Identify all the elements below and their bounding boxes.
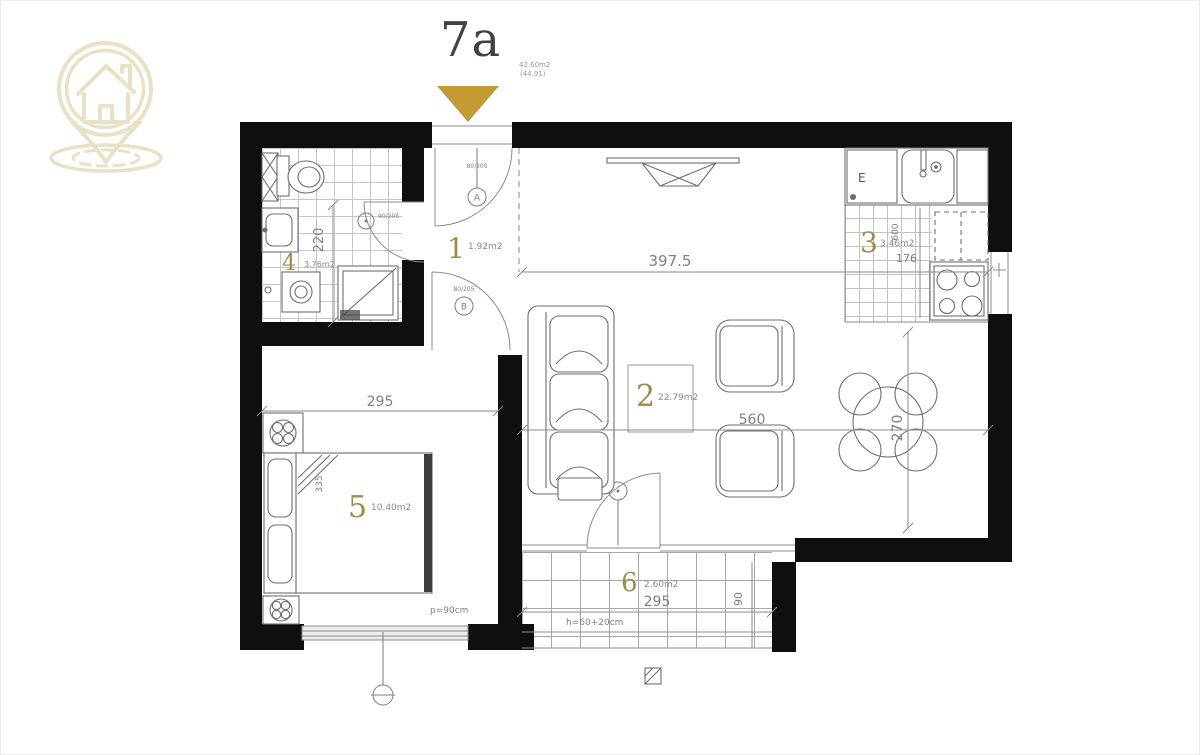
unit-title: 7a — [440, 12, 501, 68]
armchair-1 — [716, 320, 794, 392]
door-a-size: 80/205 — [466, 163, 487, 170]
total-gross-area: (44.91) — [520, 70, 546, 78]
sofa — [528, 306, 614, 500]
kitchen-e-label: E — [858, 171, 866, 185]
room-3-number: 3 — [860, 226, 878, 259]
floor-plan-page: 1 1.92m2 2 22.79m2 3 3.46m2 4 3.76m2 5 1… — [0, 0, 1200, 755]
bathroom-door-arc — [358, 202, 424, 262]
room-5-number: 5 — [348, 490, 367, 525]
tv — [607, 158, 739, 186]
nightstand-2 — [263, 596, 299, 624]
dim-terrace-depth: 90 — [732, 592, 745, 606]
room-1-area: 1.92m2 — [468, 242, 503, 252]
nightstand-1 — [263, 413, 303, 453]
room-4-area: 3.76m2 — [304, 260, 335, 269]
house-pin-logo — [40, 32, 180, 182]
terrace-railing — [522, 632, 772, 648]
pillow — [268, 459, 292, 517]
room-2-area: 22.79m2 — [658, 393, 698, 403]
radiator — [262, 153, 278, 201]
terrace-glass-wall — [522, 545, 795, 551]
door-b-letter: B — [461, 303, 467, 313]
dim-counter-depth: 600 — [891, 223, 901, 240]
bath-door-size: 90/205 — [378, 213, 399, 220]
house-roof-icon — [78, 66, 134, 94]
room-6-number: 6 — [621, 568, 638, 598]
section-marker — [371, 632, 395, 705]
note-balcony-parapet: h=60+20cm — [566, 618, 623, 628]
dining-chair — [839, 429, 881, 471]
door-b-size: 80/205 — [453, 286, 474, 293]
dim-dining-depth: 270 — [890, 415, 906, 442]
entrance-opening — [432, 126, 512, 144]
entrance-door-arc — [435, 148, 512, 226]
kitchen-sink — [902, 150, 954, 203]
dining-table-set — [839, 373, 937, 471]
dining-chair — [895, 373, 937, 415]
shower — [338, 266, 398, 320]
dim-kitchen-depth: 176 — [896, 252, 917, 265]
dim-bath-depth: 220 — [312, 228, 327, 253]
room-1-number: 1 — [447, 232, 465, 265]
dim-terrace-width: 295 — [644, 594, 671, 610]
total-net-area: 42.60m2 — [519, 61, 550, 69]
bathroom-sink — [262, 208, 298, 252]
terrace-drain — [645, 668, 661, 684]
washing-machine — [265, 272, 320, 312]
pillow — [268, 525, 292, 583]
kitchen-window — [991, 252, 1008, 314]
bedroom-window — [302, 626, 468, 640]
dim-living-width: 397.5 — [649, 252, 692, 270]
dim-bedroom-width: 295 — [367, 394, 394, 410]
gold-entry-triangle — [437, 86, 499, 122]
fridge — [935, 212, 988, 260]
house-door-icon — [100, 106, 112, 122]
floor-plan-drawing: 1 1.92m2 2 22.79m2 3 3.46m2 4 3.76m2 5 1… — [0, 0, 1200, 755]
dim-bed-width: 335 — [315, 475, 325, 492]
room-6-area: 2.60m2 — [644, 580, 679, 590]
toilet — [277, 156, 324, 196]
room-4-number: 4 — [282, 251, 296, 276]
dining-chair — [839, 373, 881, 415]
dim-dining-width: 560 — [739, 412, 766, 428]
room-2-number: 2 — [636, 379, 655, 414]
room-5-area: 10.40m2 — [371, 503, 411, 513]
door-a-letter: A — [474, 194, 481, 204]
stove — [930, 262, 988, 320]
dining-table — [853, 387, 923, 457]
note-window-parapet: p=90cm — [430, 606, 468, 616]
armchair-2 — [716, 425, 794, 497]
